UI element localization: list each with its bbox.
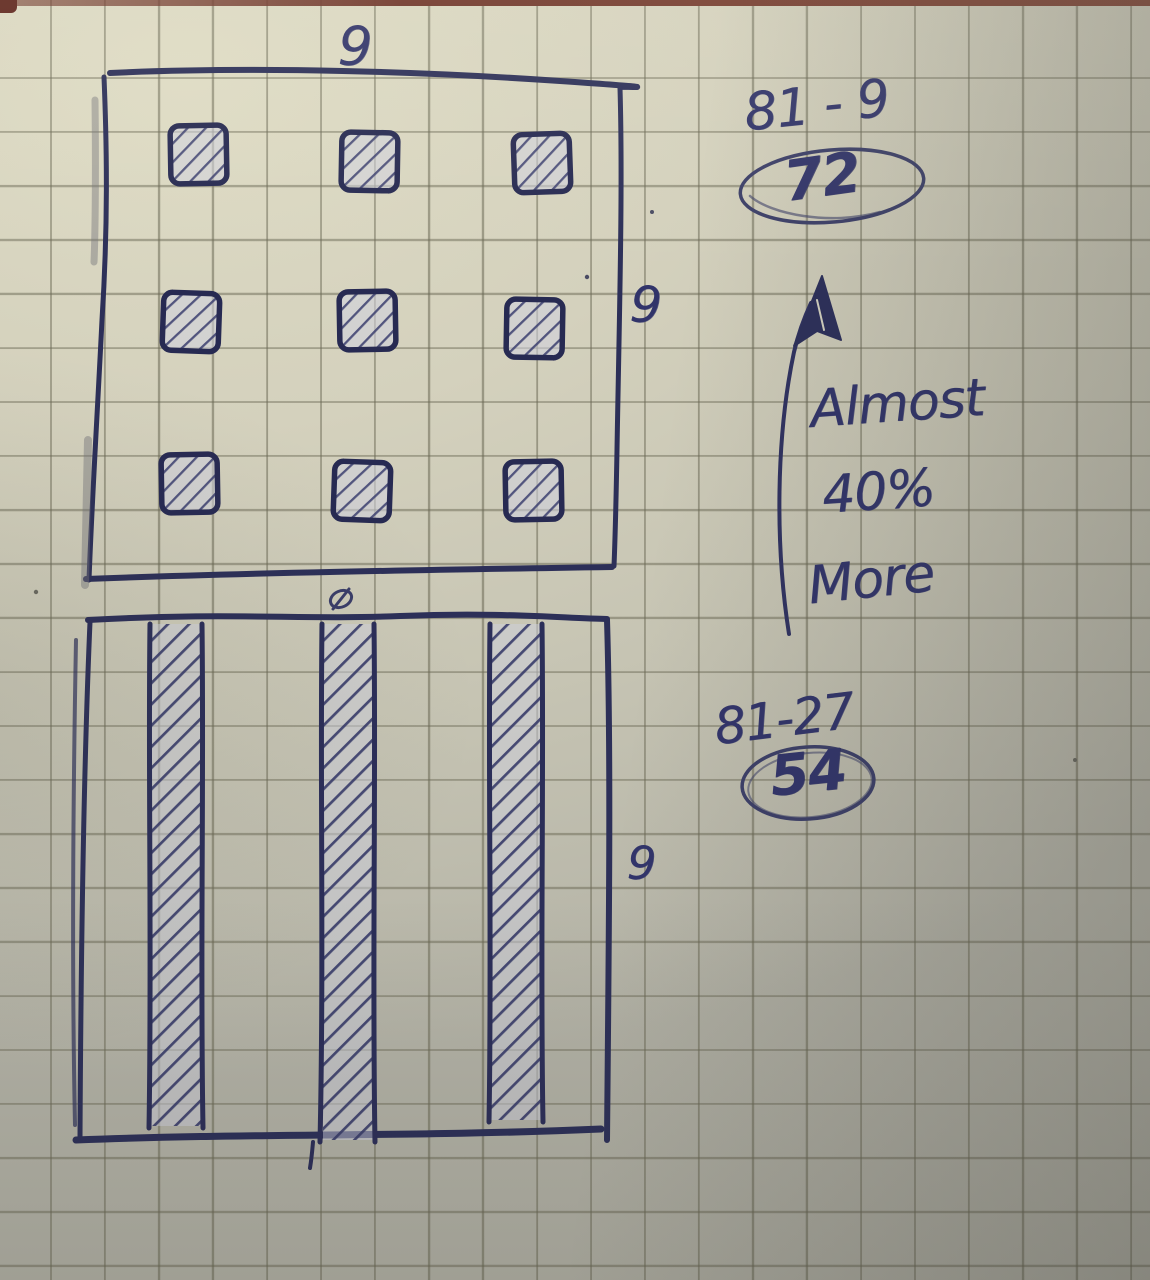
shaded-cell: [339, 291, 396, 350]
shaded-cell: [341, 132, 398, 191]
note-line-1: Almost: [808, 372, 985, 436]
shaded-cell: [513, 133, 571, 193]
shaded-cell: [170, 125, 227, 184]
calc1-expression: 81 - 9: [742, 73, 892, 140]
shaded-column-3: [489, 624, 543, 1122]
top-height-label: 9: [629, 279, 662, 331]
note-line-3: More: [806, 548, 937, 613]
top-width-label: 9: [337, 19, 372, 74]
shaded-cell: [333, 461, 391, 521]
calc1-result: 72: [780, 145, 863, 211]
shaded-cell: [506, 299, 563, 358]
bottom-height-label: 9: [626, 840, 656, 887]
slashed-oval-mark: [328, 587, 355, 611]
calc2-result: 54: [767, 742, 848, 806]
shaded-column-2: [310, 624, 375, 1168]
shaded-cell: [161, 454, 218, 513]
top-square-shaded-cells: [161, 125, 571, 521]
shaded-cell: [162, 292, 220, 352]
shaded-column-1: [149, 624, 203, 1128]
shaded-cell: [505, 461, 562, 520]
notebook-photo: 9 9 9 81 - 9 72 Almost 40% More 81-27 54: [0, 0, 1150, 1280]
pen-sketch: [0, 0, 1150, 1280]
note-line-2: 40%: [820, 462, 936, 522]
